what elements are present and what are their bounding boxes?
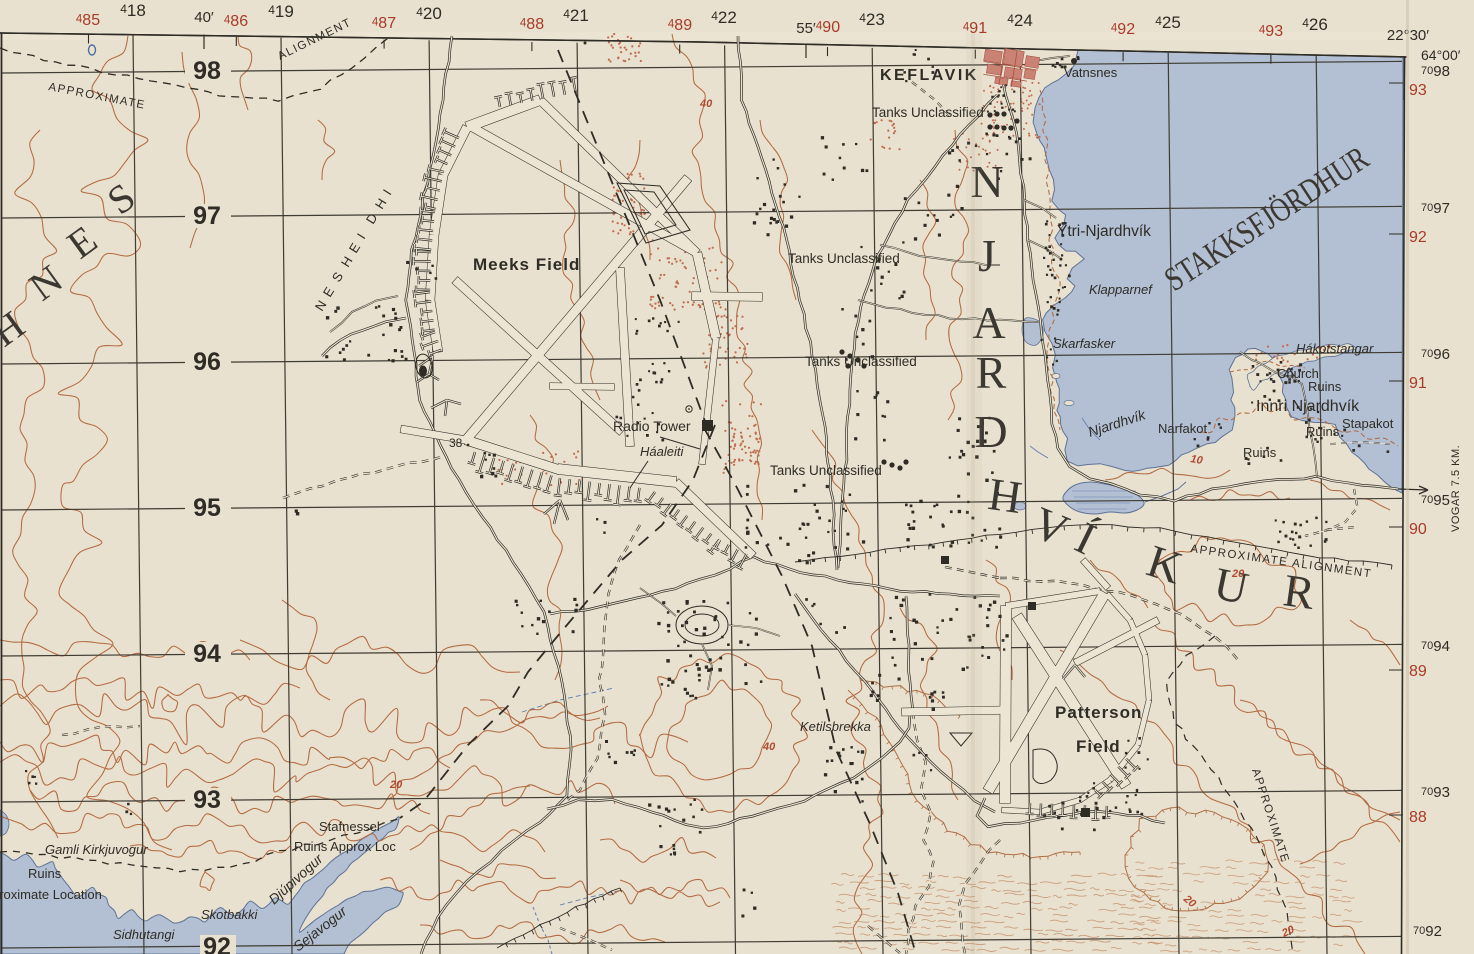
svg-text:Ruins Approx Loc: Ruins Approx Loc <box>294 839 396 854</box>
svg-text:KEFLAVIK: KEFLAVIK <box>880 67 979 84</box>
svg-text:Narfakot: Narfakot <box>1158 421 1208 436</box>
svg-text:Meeks Field: Meeks Field <box>473 255 580 274</box>
svg-text:90: 90 <box>1409 521 1427 538</box>
svg-text:40′: 40′ <box>194 9 214 26</box>
svg-text:Tanks Unclassified: Tanks Unclassified <box>805 354 917 369</box>
svg-text:Ruins: Ruins <box>1308 379 1342 394</box>
svg-text:Hákotstangar: Hákotstangar <box>1296 341 1374 356</box>
svg-text:91: 91 <box>1409 375 1427 392</box>
svg-text:20: 20 <box>1231 568 1245 580</box>
svg-text:Skarfasker: Skarfasker <box>1053 336 1116 351</box>
svg-text:88: 88 <box>1409 809 1427 826</box>
svg-text:98: 98 <box>193 57 221 85</box>
svg-text:Sidhutangi: Sidhutangi <box>113 927 176 942</box>
svg-text:92: 92 <box>203 933 231 954</box>
svg-text:Ruins: Ruins <box>1243 445 1277 460</box>
svg-text:38: 38 <box>449 436 463 450</box>
svg-text:Skotbakki: Skotbakki <box>201 907 258 922</box>
svg-text:Vatnsnes: Vatnsnes <box>1064 65 1118 80</box>
svg-text:55′: 55′ <box>796 20 816 37</box>
svg-text:97: 97 <box>193 202 221 230</box>
svg-text:Tanks Unclassified: Tanks Unclassified <box>770 463 882 478</box>
svg-text:proximate Location: proximate Location <box>0 887 102 902</box>
svg-text:Klapparnef: Klapparnef <box>1089 282 1153 297</box>
svg-text:Háaleiti: Háaleiti <box>640 444 684 459</box>
svg-text:H: H <box>985 468 1025 523</box>
svg-text:Radio Tower: Radio Tower <box>613 418 691 434</box>
svg-text:Ruins: Ruins <box>28 866 62 881</box>
svg-text:92: 92 <box>1409 229 1427 246</box>
svg-text:93: 93 <box>1409 82 1427 99</box>
svg-text:40: 40 <box>699 98 713 110</box>
svg-text:VOGAR 7.5 KM.: VOGAR 7.5 KM. <box>1450 445 1462 532</box>
svg-text:95: 95 <box>193 494 221 522</box>
svg-text:Innri Njardhvík: Innri Njardhvík <box>1256 398 1360 415</box>
svg-text:64°00′: 64°00′ <box>1421 47 1461 63</box>
svg-text:89: 89 <box>1409 663 1427 680</box>
svg-text:93: 93 <box>193 786 221 814</box>
svg-text:Gamli Kirkjuvogur: Gamli Kirkjuvogur <box>45 842 148 857</box>
svg-text:96: 96 <box>193 348 221 376</box>
svg-text:40: 40 <box>762 741 776 753</box>
svg-text:Stapakot: Stapakot <box>1342 416 1394 431</box>
svg-text:94: 94 <box>193 640 221 668</box>
svg-text:Ytri-Njardhvík: Ytri-Njardhvík <box>1057 223 1151 240</box>
svg-text:Patterson: Patterson <box>1055 703 1142 722</box>
svg-text:20: 20 <box>389 779 403 791</box>
svg-text:Stafnessel: Stafnessel <box>319 819 380 834</box>
svg-text:Ketilsbrekka: Ketilsbrekka <box>800 719 871 734</box>
svg-text:Field: Field <box>1076 737 1121 756</box>
svg-text:Tanks Unclassified: Tanks Unclassified <box>788 251 900 266</box>
svg-text:Ruins: Ruins <box>1306 424 1340 439</box>
